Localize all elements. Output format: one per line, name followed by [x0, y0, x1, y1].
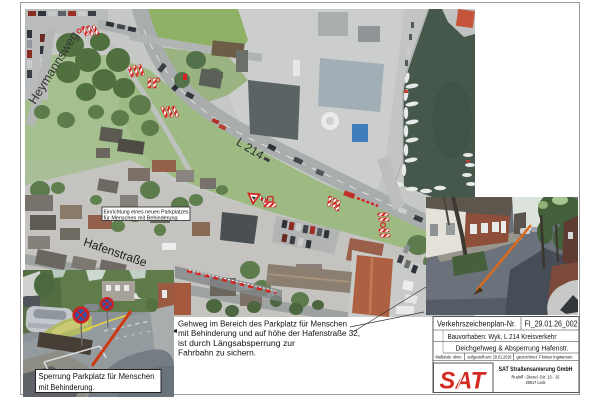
- svg-text:Fahrbahn zu sichern.: Fahrbahn zu sichern.: [178, 349, 256, 358]
- svg-text:Gehweg im Bereich des Parkplat: Gehweg im Bereich des Parkplatz für Mens…: [178, 320, 347, 329]
- svg-text:mit Behinderung.: mit Behinderung.: [39, 383, 95, 392]
- svg-text:Sperrung Parkplatz für Mensche: Sperrung Parkplatz für Menschen: [39, 372, 155, 381]
- svg-text:mit Behinderung und auf höhe d: mit Behinderung und auf höhe der Hafenst…: [178, 329, 360, 338]
- svg-text:für Menschen mit Behinderung: für Menschen mit Behinderung: [104, 215, 178, 221]
- svg-text:ist durch Längsabsperrung zur: ist durch Längsabsperrung zur: [178, 339, 295, 348]
